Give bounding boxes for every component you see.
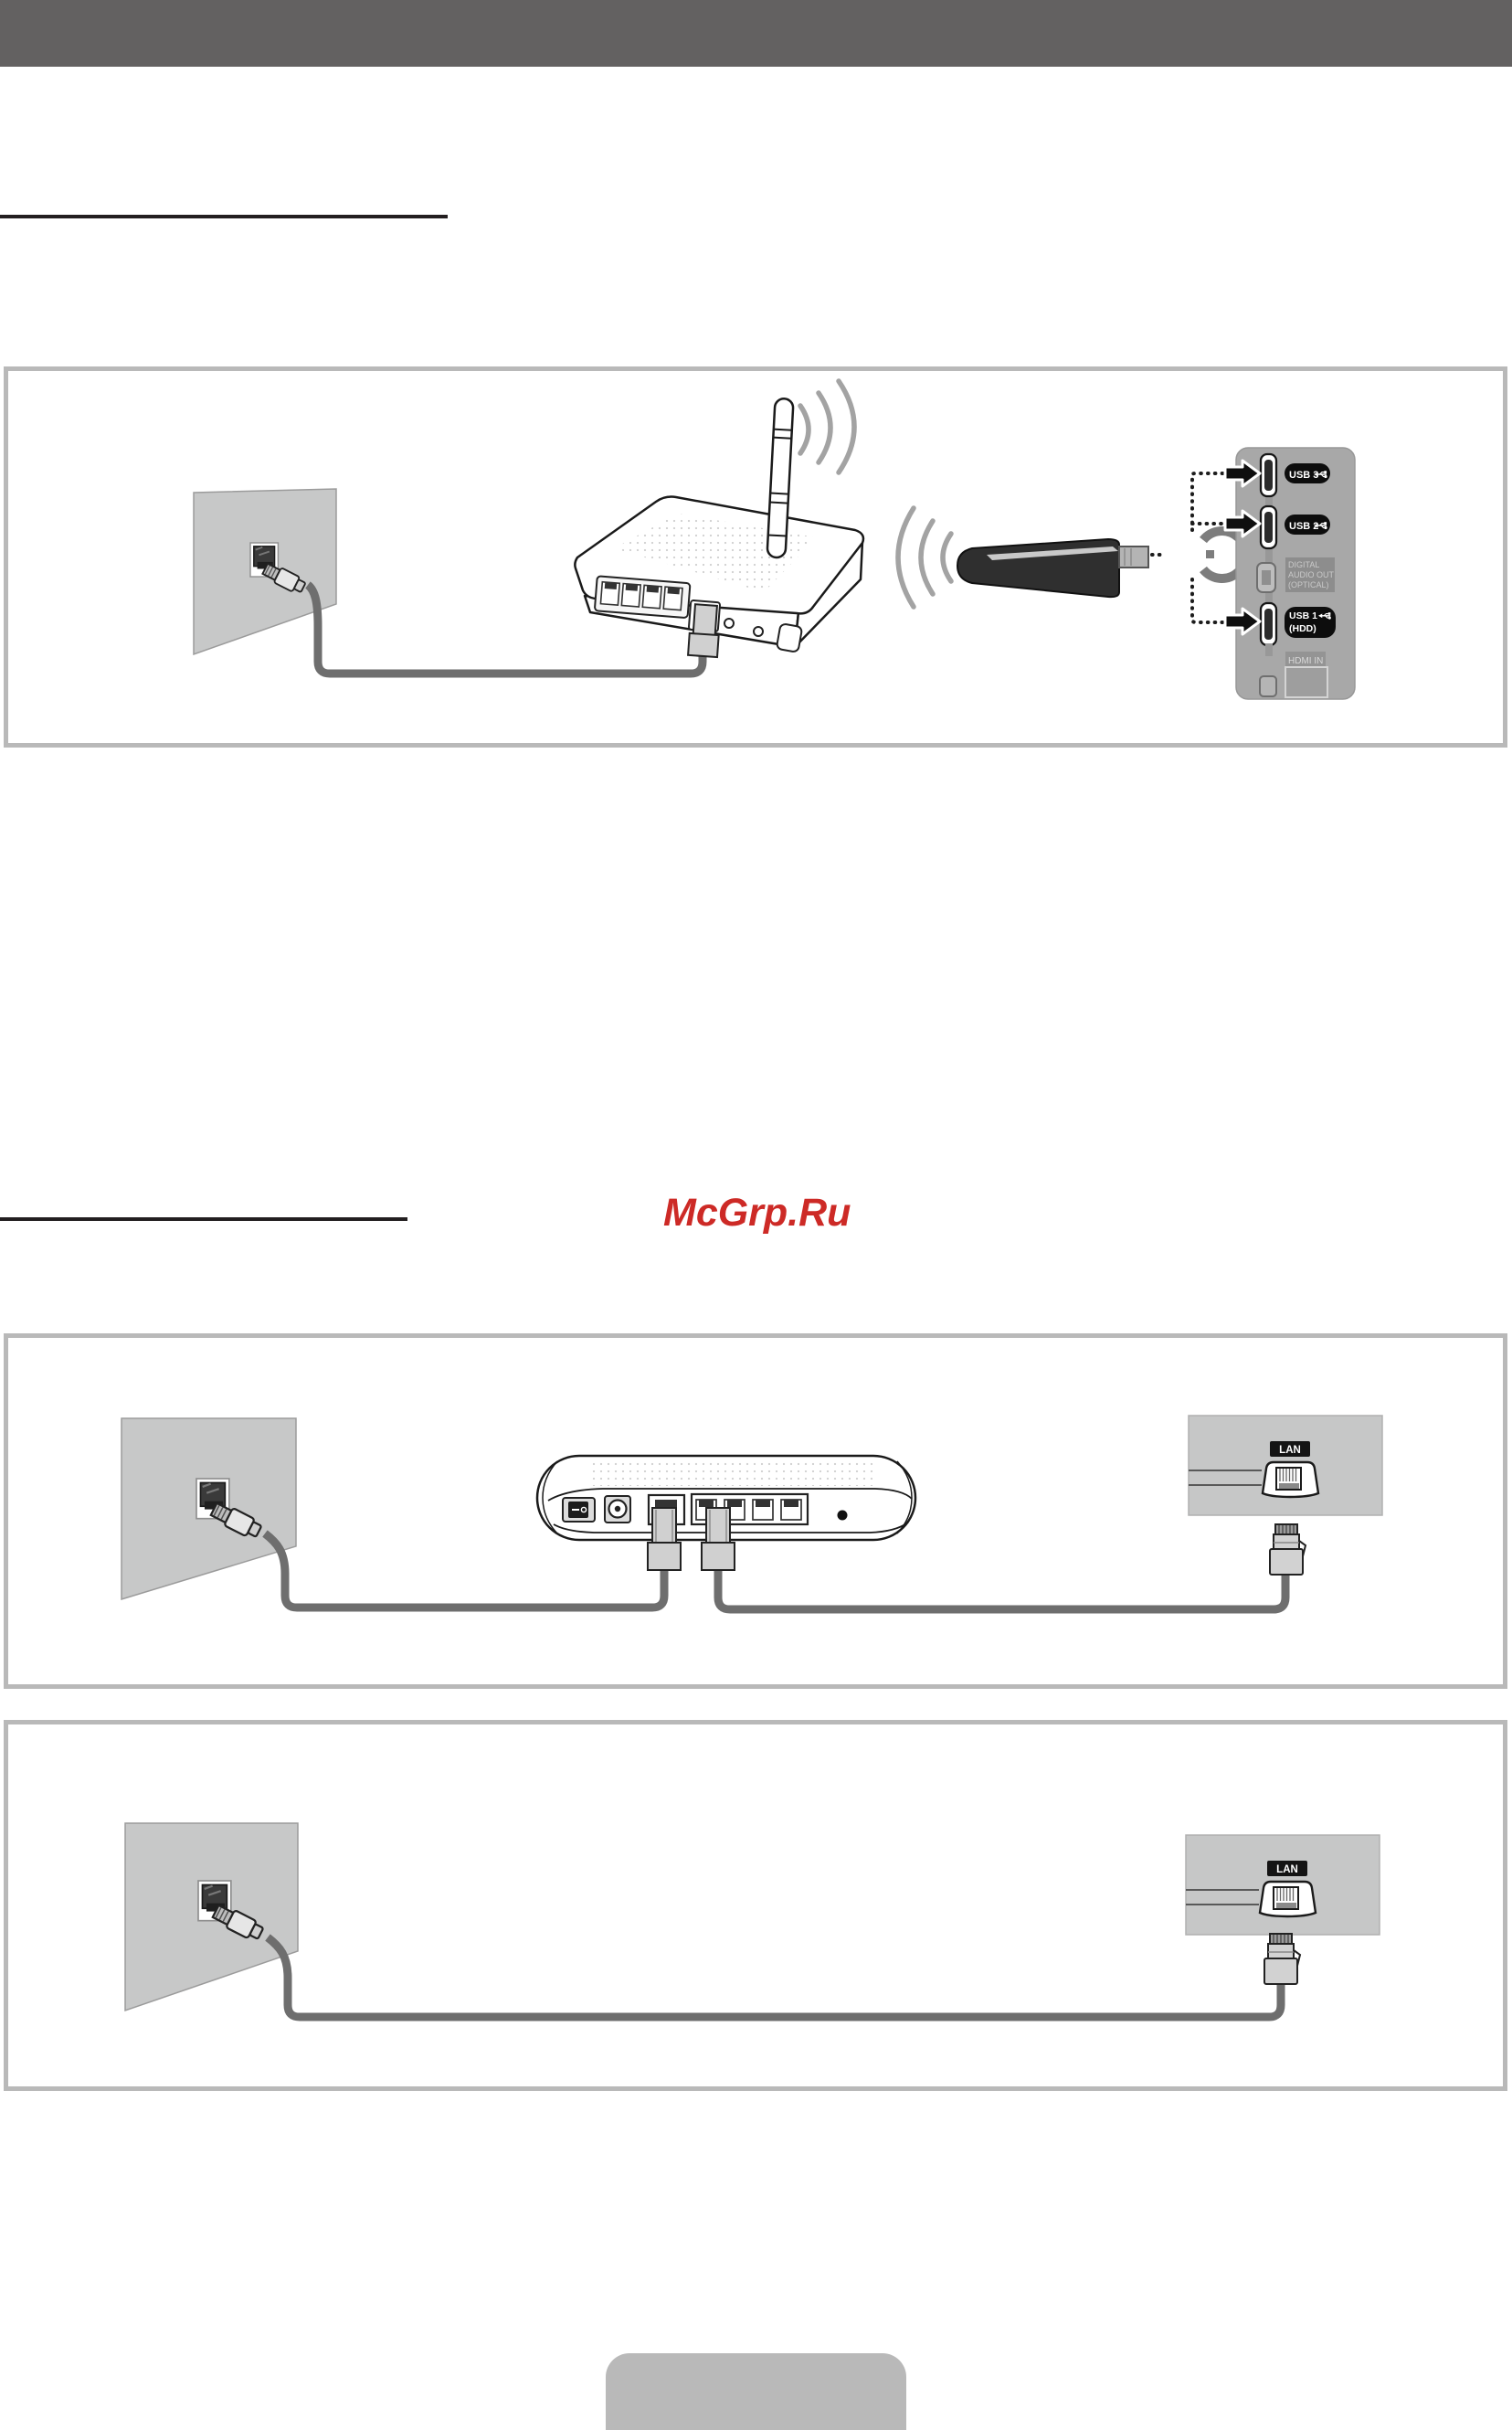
manual-page: { "colors": { "top_bar": "#636161", "rul… xyxy=(0,0,1512,2430)
diagram-box-wired-router-connection xyxy=(4,1333,1507,1689)
section-heading-rule-wireless xyxy=(0,215,448,218)
top-header-bar xyxy=(0,0,1512,67)
diagram-box-wireless-connection xyxy=(4,366,1507,748)
section-heading-rule-wired xyxy=(0,1217,407,1221)
diagram-box-wired-direct-connection xyxy=(4,1720,1507,2091)
page-number-tab xyxy=(606,2353,906,2430)
watermark-link[interactable]: McGrp.Ru xyxy=(663,1191,851,1236)
